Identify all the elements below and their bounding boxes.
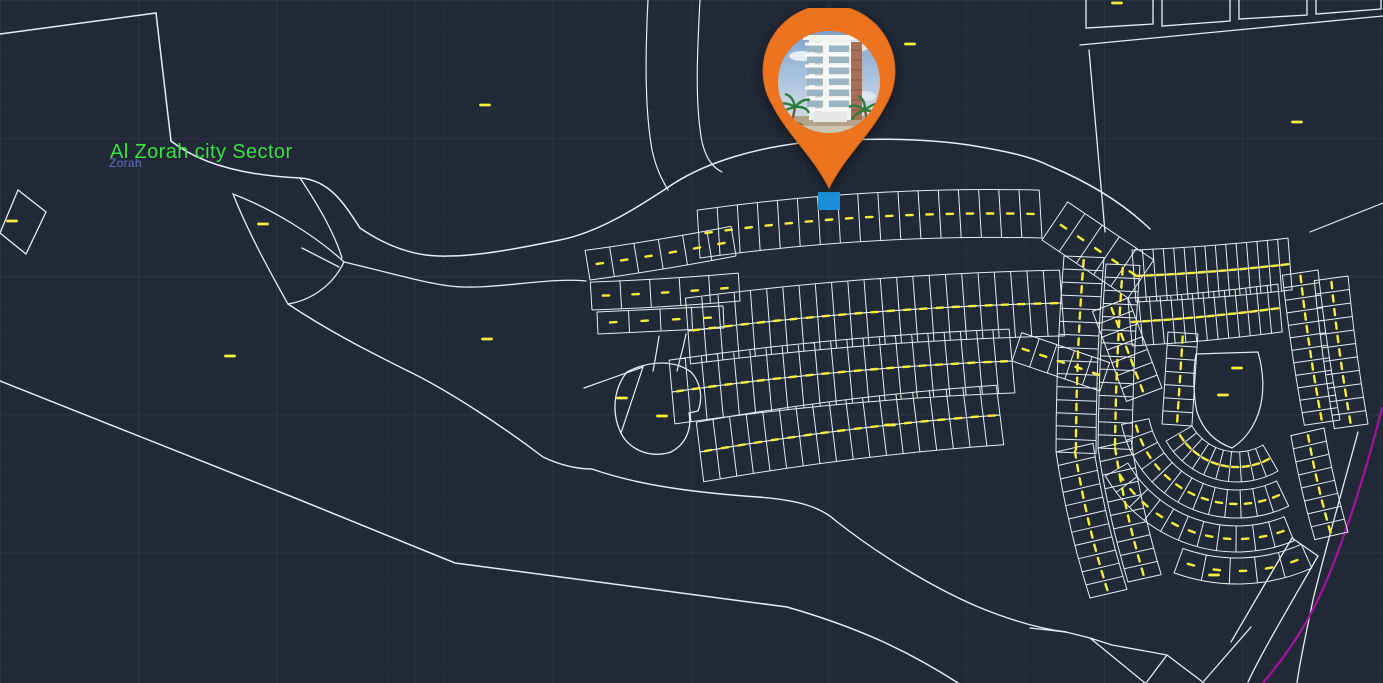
- lot-strip: [1174, 544, 1312, 584]
- sector-title-label: Al Zorah city Sector: [110, 141, 293, 164]
- lot-strip: [1314, 276, 1368, 429]
- lot-strip: [597, 306, 724, 334]
- lot-strip: [585, 226, 736, 280]
- lot-strip: [1056, 443, 1127, 598]
- leaf-parcel: [233, 194, 344, 304]
- parcel-lot-lines: [585, 190, 1368, 599]
- road-drop-to-leaf: [300, 178, 342, 258]
- lot-dash-row: [693, 303, 1057, 330]
- north-access-road: [646, 0, 722, 190]
- south-curved-road: [1231, 538, 1318, 682]
- top-right-boundary: [1089, 50, 1105, 232]
- top-right-parcels: [1086, 0, 1381, 28]
- scattered-lot-dashes: [8, 3, 1302, 575]
- lot-strip: [1130, 308, 1282, 346]
- lot-dash-row: [1180, 435, 1269, 467]
- south-junction-roads: [1030, 627, 1251, 683]
- boundary-top-left: [0, 13, 171, 141]
- rounded-park-plot: [1194, 352, 1263, 448]
- lot-dash-row: [1076, 260, 1084, 449]
- lot-strip: [700, 415, 1004, 482]
- lot-strip: [1056, 256, 1104, 454]
- cad-viewport[interactable]: Al Zorah city Sector Zorah: [0, 0, 1383, 683]
- southeast-boundary: [1297, 432, 1358, 683]
- lot-dash-row: [705, 214, 1033, 234]
- lot-dash-row: [1177, 336, 1183, 421]
- blob-parcel: [615, 363, 701, 454]
- blob-side-wedge: [584, 367, 643, 433]
- lot-dash-row: [677, 361, 1007, 391]
- lot-strip: [1166, 426, 1278, 482]
- top-right-road: [1080, 16, 1383, 45]
- site-plan-drawing: [0, 0, 1383, 683]
- lot-strip: [1132, 238, 1290, 276]
- location-pin[interactable]: [757, 8, 903, 194]
- main-approach-road-lower: [344, 262, 586, 287]
- lot-dash-row: [603, 288, 728, 296]
- outer-boundary: [0, 381, 958, 683]
- lagoon-inner-edge: [288, 304, 1066, 632]
- lot-dash-row: [1136, 264, 1288, 276]
- lot-strip: [686, 270, 1063, 331]
- lot-strip: [1291, 428, 1348, 540]
- highlighted-plot[interactable]: [818, 192, 840, 210]
- lot-strip: [697, 190, 1042, 259]
- top-right-diagonal: [1310, 203, 1383, 232]
